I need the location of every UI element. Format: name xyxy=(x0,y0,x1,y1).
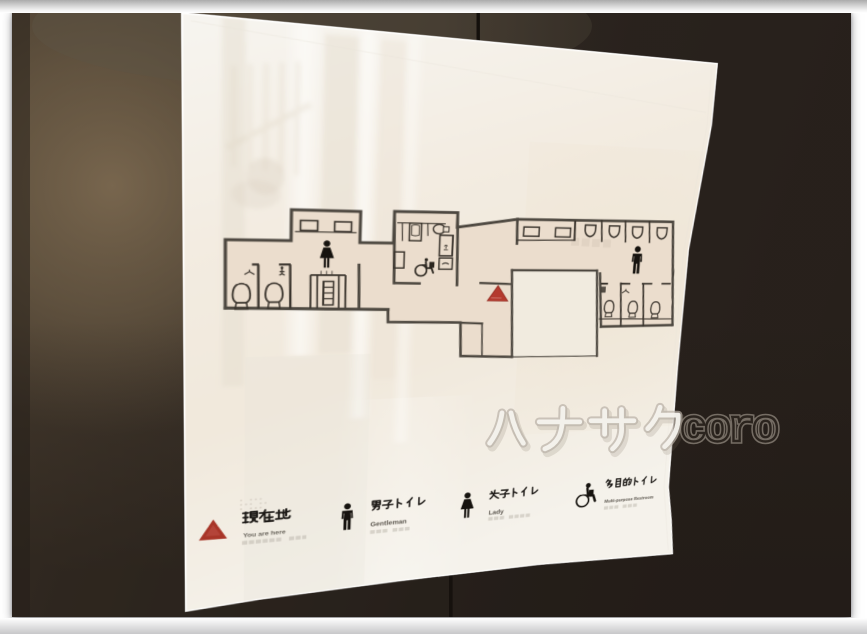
svg-text:coro: coro xyxy=(680,404,777,455)
